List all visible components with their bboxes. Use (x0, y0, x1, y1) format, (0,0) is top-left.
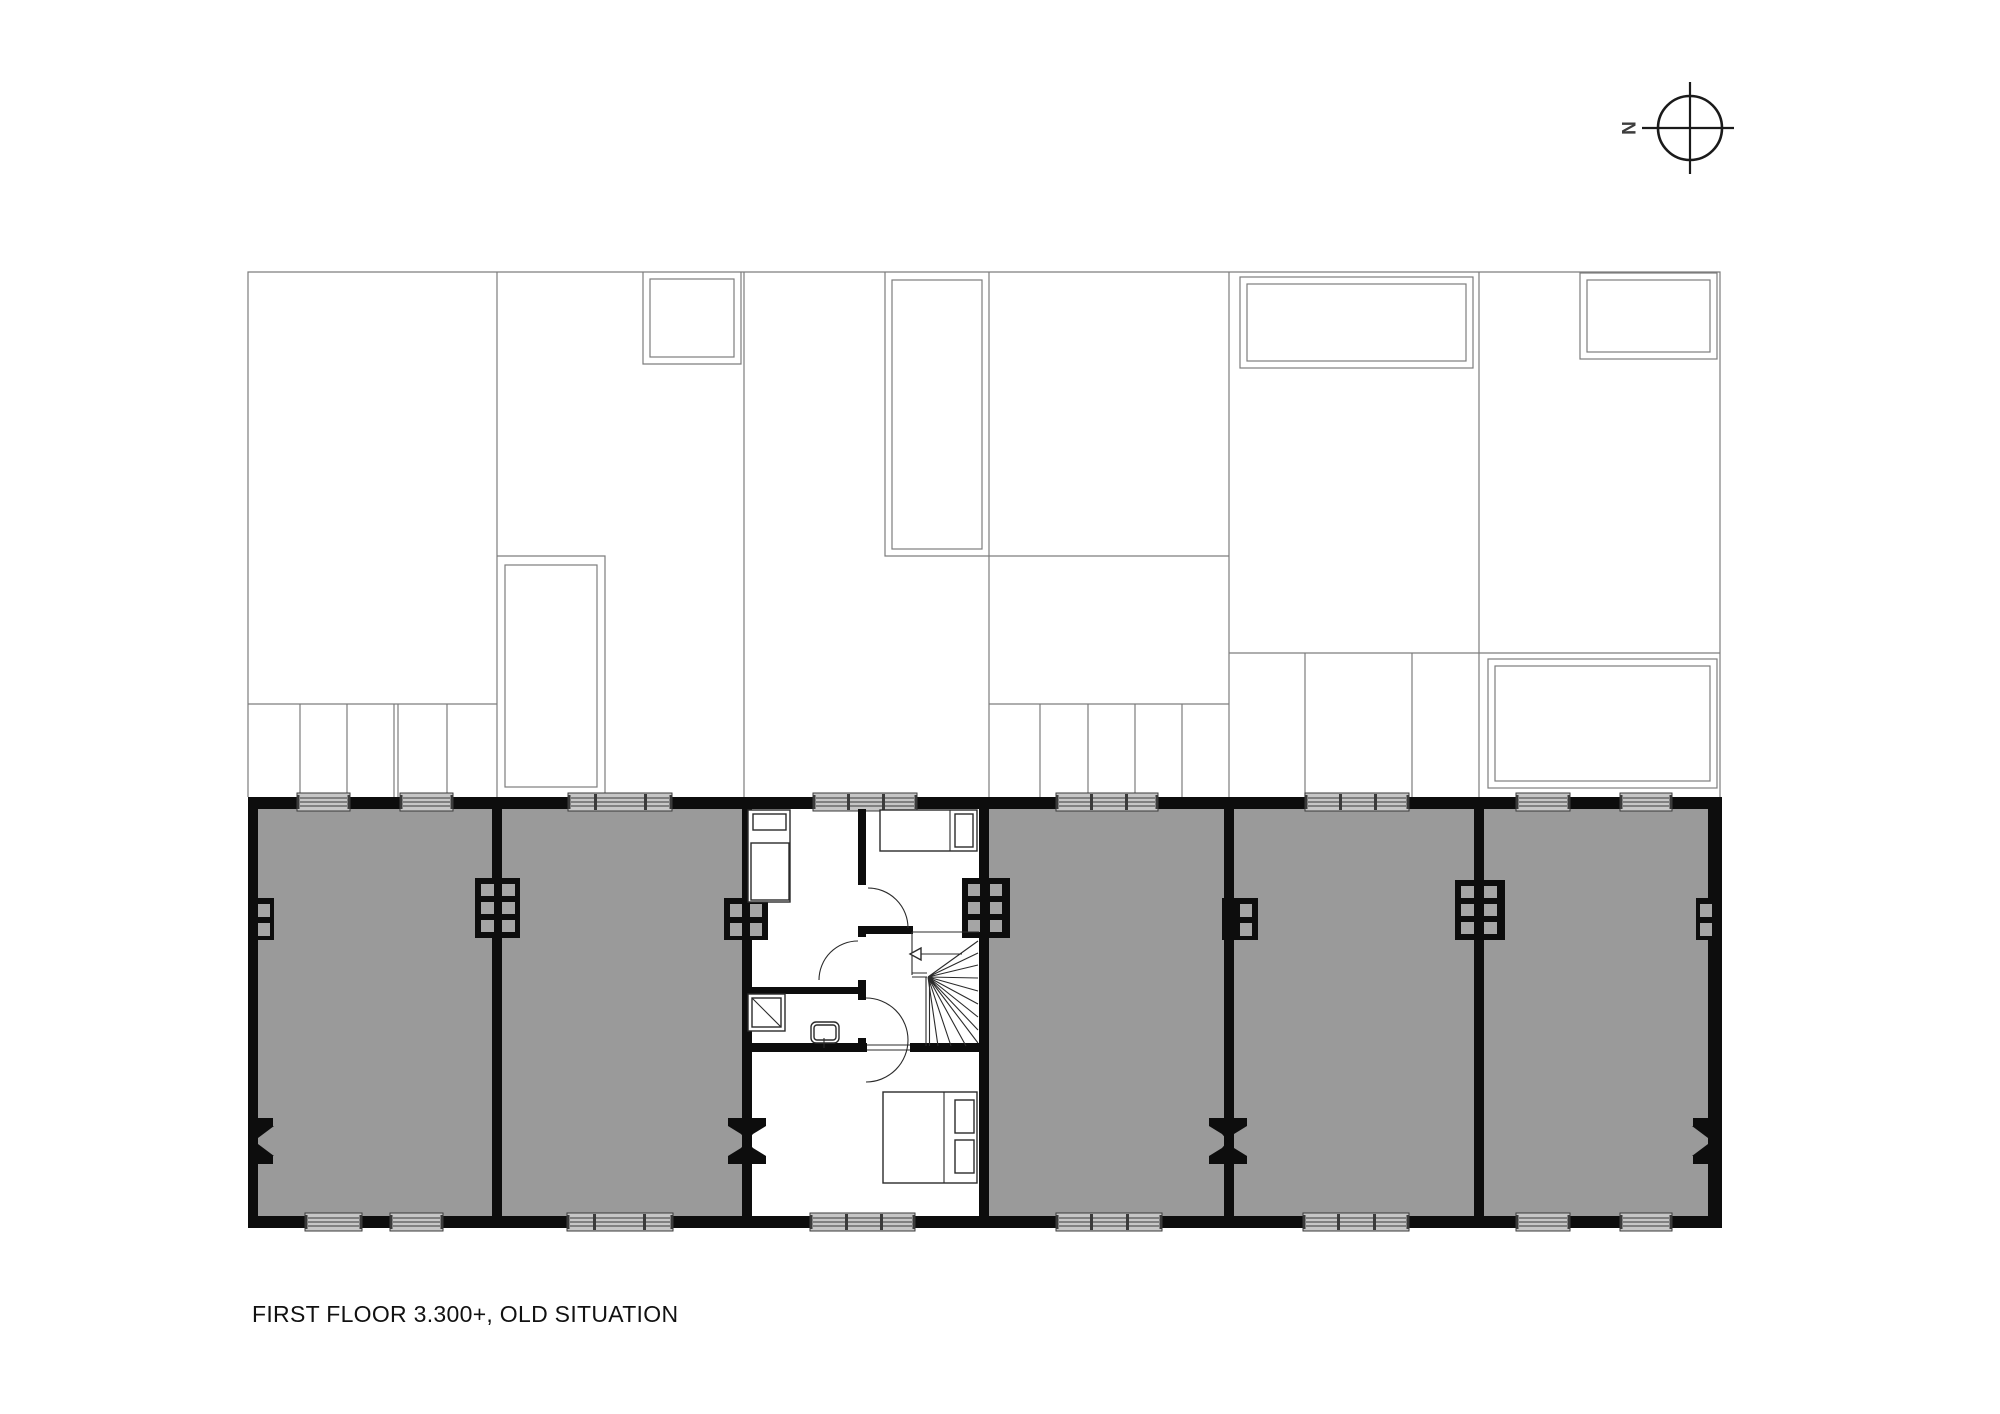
chimney-block-small (1696, 898, 1722, 940)
single-bed-left (748, 810, 790, 902)
window-wide (567, 1213, 673, 1231)
section3-shaft-inner (892, 280, 982, 549)
shower (748, 994, 785, 1031)
section2-shaft-outline (497, 556, 605, 797)
upper-roof-region (248, 272, 1720, 797)
room-dwelling-6 (1484, 809, 1708, 1216)
room-dwelling-2 (502, 809, 742, 1216)
single-bed-right (880, 810, 977, 851)
bedroom-wall (752, 1043, 867, 1052)
chimney-block-small (1222, 898, 1258, 940)
window-wide (1056, 793, 1158, 811)
window-wide (813, 793, 917, 811)
section6-terrace-inner (1495, 666, 1710, 781)
window (305, 1213, 362, 1231)
window (1516, 1213, 1570, 1231)
partition-divider (858, 809, 866, 885)
partition-divider (858, 980, 866, 1000)
window-wide (810, 1213, 915, 1231)
wall-right (1708, 797, 1722, 1228)
window (1620, 1213, 1672, 1231)
upper-outline-and-section-lines (248, 272, 1720, 797)
double-bed (883, 1092, 977, 1183)
chimney-block-small (724, 898, 768, 940)
section6-terrace-outer (1488, 659, 1717, 788)
floor-plan-page: N FIRST FLOOR 3.300+, OLD SITUATION (0, 0, 2000, 1414)
floor-plan-drawing: N FIRST FLOOR 3.300+, OLD SITUATION (0, 0, 2000, 1414)
window-wide (1303, 1213, 1409, 1231)
chimney-block-small (248, 898, 274, 940)
section3-shaft-outline (885, 272, 989, 556)
window (390, 1213, 443, 1231)
room-dwelling-4 (989, 809, 1224, 1216)
room-dwelling-1 (258, 809, 492, 1216)
section2-rooflight-square (643, 272, 741, 364)
chimney-block-large (475, 878, 520, 938)
partition-divider (858, 926, 866, 937)
party-wall-5-6 (1474, 797, 1484, 1228)
bedroom-wall (910, 1043, 979, 1052)
section1-dormer-strips (248, 704, 497, 797)
party-wall-3-4 (979, 797, 989, 1228)
section2-rooflight-square-inner (650, 279, 734, 357)
chimney-block-large (962, 878, 1010, 938)
north-label: N (1620, 121, 1641, 135)
section2-shaft-inner (505, 565, 597, 787)
wall-left (248, 797, 258, 1228)
section5-rooflight-inner (1247, 284, 1466, 361)
window (297, 793, 350, 811)
section4-lines-and-strips (989, 556, 1229, 797)
chimney-block-large (1455, 880, 1505, 940)
drawing-caption: FIRST FLOOR 3.300+, OLD SITUATION (252, 1301, 678, 1327)
partition-stub (866, 926, 913, 934)
window-wide (1305, 793, 1409, 811)
section6-rooflight-outer (1580, 273, 1717, 359)
window (1516, 793, 1570, 811)
section5-6-split-and-strips (1229, 653, 1720, 797)
window (400, 793, 453, 811)
party-wall-1-2 (492, 797, 502, 1228)
window (1620, 793, 1672, 811)
north-compass: N (1620, 82, 1735, 174)
bathroom-wall (752, 987, 858, 994)
room-dwelling-5 (1234, 809, 1474, 1216)
section5-rooflight-outer (1240, 277, 1473, 368)
window-wide (1056, 1213, 1162, 1231)
window-wide (568, 793, 672, 811)
section6-rooflight-inner (1587, 280, 1710, 352)
